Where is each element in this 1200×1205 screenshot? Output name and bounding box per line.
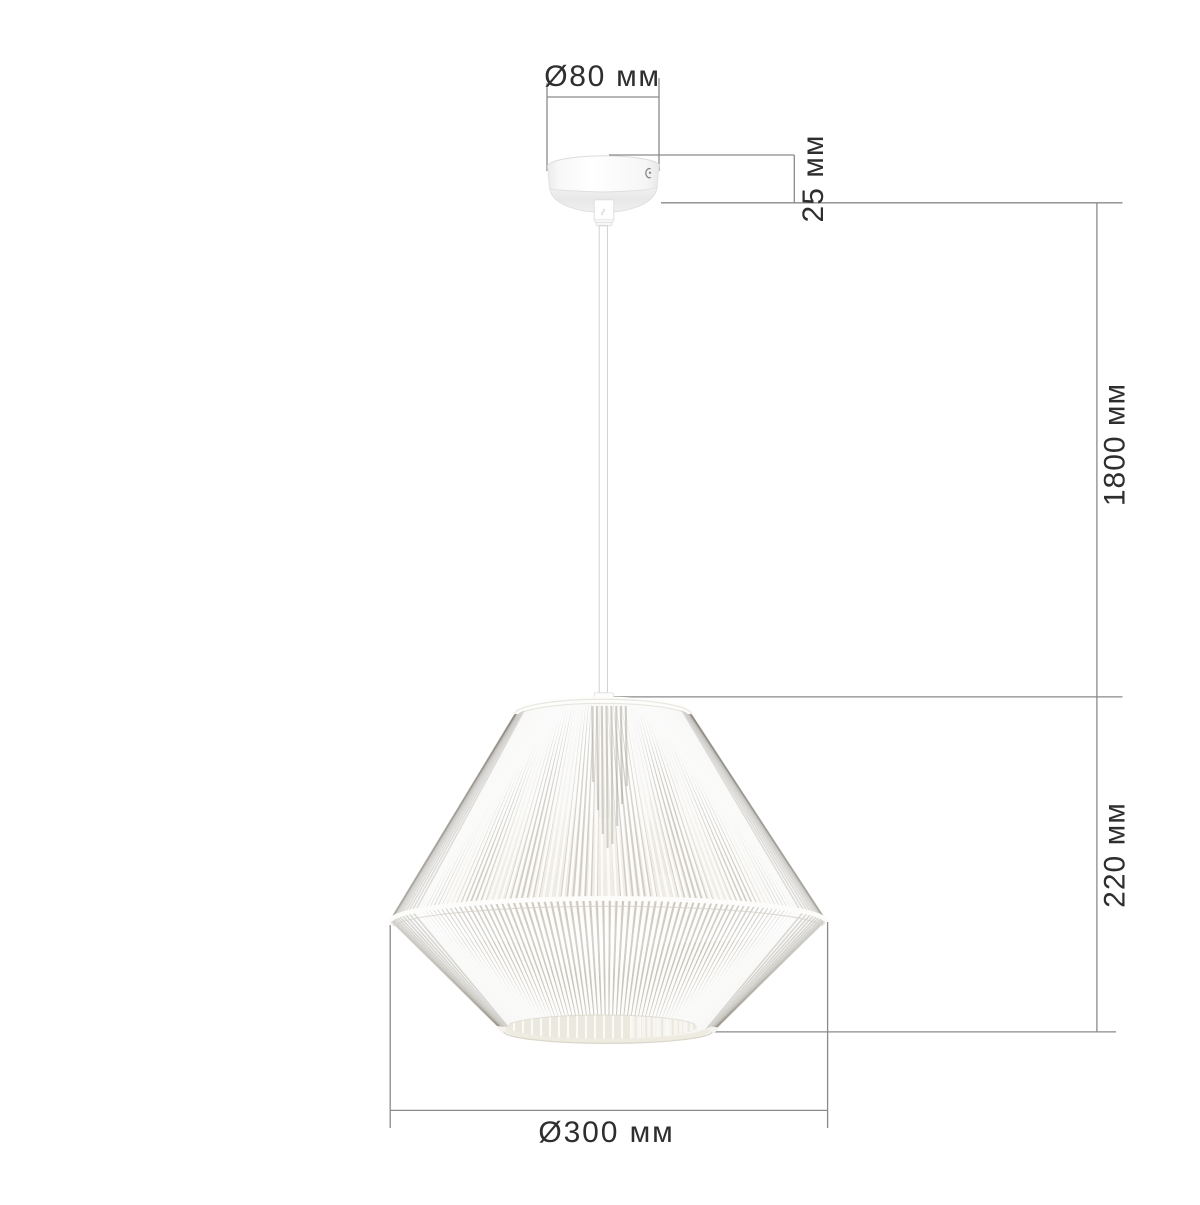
svg-text:Ø300 мм: Ø300 мм bbox=[538, 1116, 674, 1149]
svg-text:25 мм: 25 мм bbox=[797, 135, 830, 223]
svg-text:Ø80 мм: Ø80 мм bbox=[544, 60, 661, 93]
svg-text:220 мм: 220 мм bbox=[1099, 802, 1132, 908]
svg-text:1800 мм: 1800 мм bbox=[1099, 383, 1132, 506]
